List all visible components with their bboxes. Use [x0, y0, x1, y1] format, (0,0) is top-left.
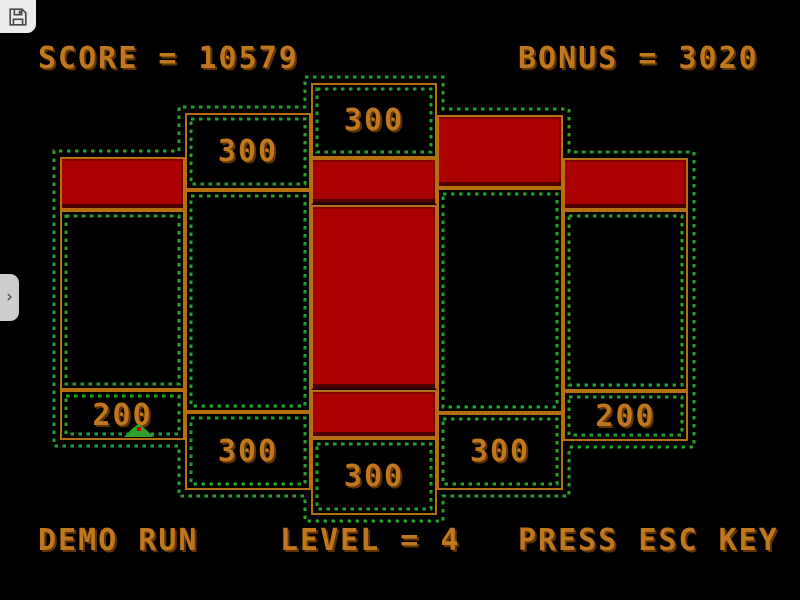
floppy-icon [7, 6, 29, 28]
board-box-a1 [60, 157, 185, 210]
board-box-e1 [563, 158, 688, 210]
box-value-label: 300 [218, 134, 278, 169]
press-esc-text: PRESS ESC KEY [518, 526, 779, 556]
level-text: LEVEL = 4 [280, 526, 461, 556]
save-button[interactable] [0, 0, 36, 33]
board-box-e2 [563, 210, 688, 391]
board-box-d1 [437, 115, 563, 188]
board-box-b3: 300 [185, 412, 311, 490]
board-box-d3: 300 [437, 413, 563, 490]
board-box-b2 [185, 190, 311, 412]
game-screen: 200300300300300300200 SCORE = 10579 BONU… [0, 0, 800, 600]
board-box-c4 [311, 390, 437, 438]
box-value-label: 300 [344, 103, 404, 138]
board-box-b1: 300 [185, 113, 311, 190]
box-value-label: 200 [92, 398, 152, 433]
board-box-c5: 300 [311, 438, 437, 515]
box-value-label: 300 [218, 434, 278, 469]
bonus-text: BONUS = 3020 [518, 44, 759, 74]
board-box-c1: 300 [311, 83, 437, 158]
box-value-label: 300 [344, 459, 404, 494]
sidebar-toggle[interactable]: › [0, 274, 19, 321]
box-value-label: 300 [470, 434, 530, 469]
board-box-c3 [311, 205, 437, 390]
board-box-c2 [311, 158, 437, 205]
score-text: SCORE = 10579 [38, 44, 299, 74]
worm-eye [137, 427, 141, 431]
board-box-d2 [437, 188, 563, 413]
board-box-a3: 200 [60, 390, 185, 440]
box-value-label: 200 [595, 399, 655, 434]
board-box-e3: 200 [563, 391, 688, 441]
chevron-right-icon: › [6, 289, 13, 306]
board-box-a2 [60, 210, 185, 390]
demo-run-text: DEMO RUN [38, 526, 199, 556]
